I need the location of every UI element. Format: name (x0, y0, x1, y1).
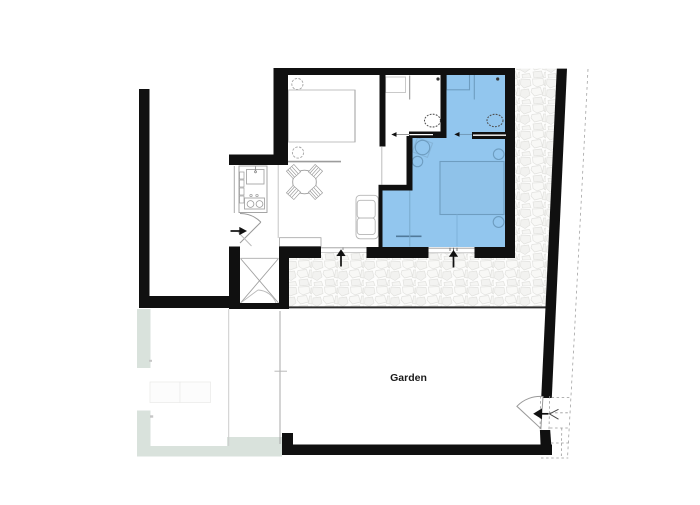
svg-text:Garden: Garden (390, 372, 427, 384)
